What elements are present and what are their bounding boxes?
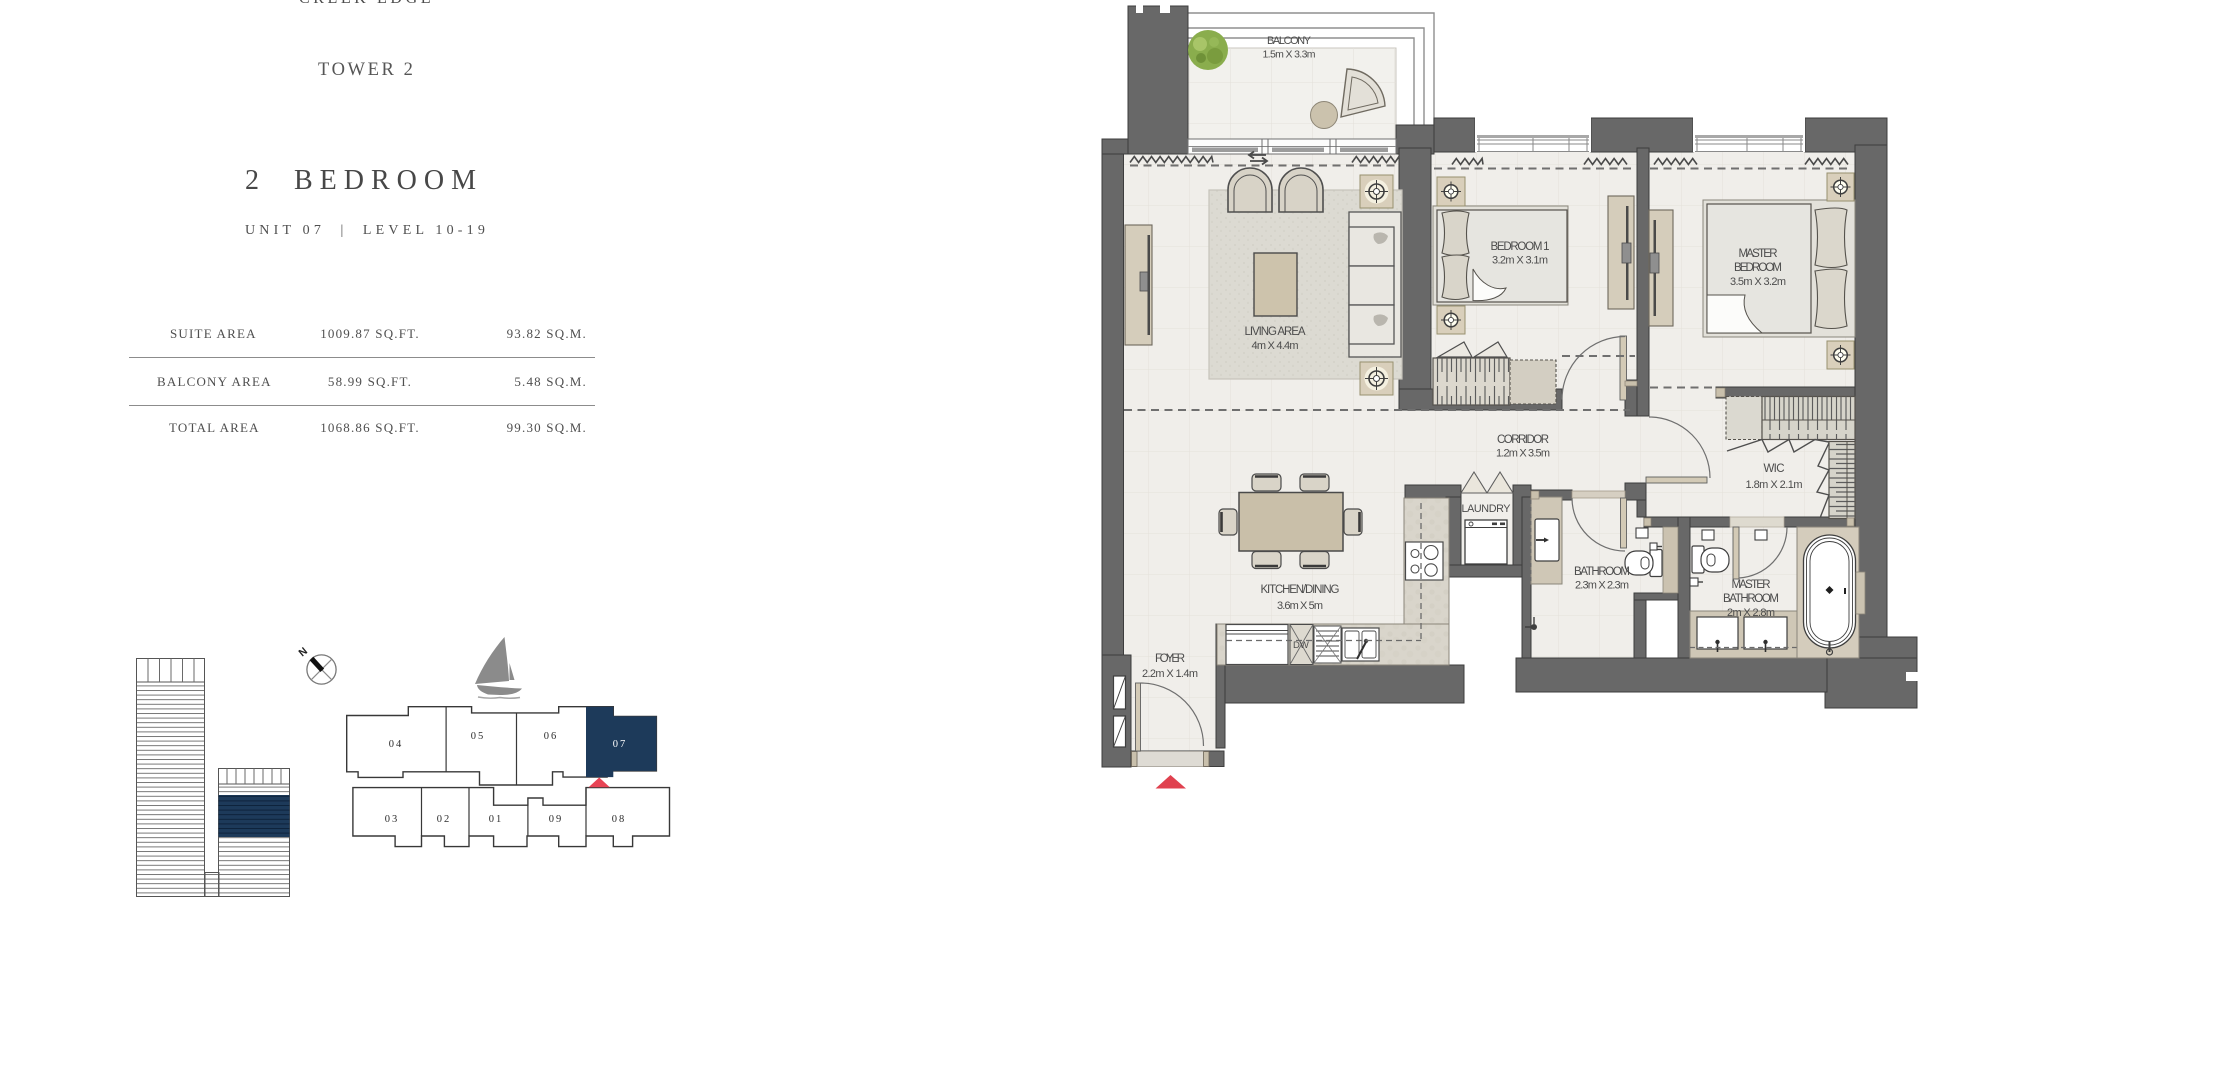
svg-text:08: 08 bbox=[612, 814, 627, 825]
svg-text:09: 09 bbox=[549, 814, 564, 825]
svg-text:2.3m X 2.3m: 2.3m X 2.3m bbox=[1575, 580, 1629, 592]
svg-text:BEDROOM 1: BEDROOM 1 bbox=[1491, 241, 1550, 253]
svg-text:MASTER: MASTER bbox=[1739, 248, 1778, 260]
svg-text:LIVING AREA: LIVING AREA bbox=[1245, 326, 1306, 338]
svg-text:1.2m X 3.5m: 1.2m X 3.5m bbox=[1496, 448, 1550, 460]
svg-text:3.6m X 5m: 3.6m X 5m bbox=[1277, 600, 1323, 612]
svg-text:FOYER: FOYER bbox=[1155, 653, 1185, 665]
svg-text:LAUNDRY: LAUNDRY bbox=[1462, 503, 1511, 515]
svg-text:3.5m X 3.2m: 3.5m X 3.2m bbox=[1730, 276, 1786, 288]
svg-text:CORRIDOR: CORRIDOR bbox=[1497, 434, 1549, 446]
svg-text:03: 03 bbox=[385, 814, 400, 825]
svg-text:BATHROOM: BATHROOM bbox=[1574, 566, 1630, 578]
svg-text:4m X 4.4m: 4m X 4.4m bbox=[1252, 340, 1299, 352]
svg-text:2m X 2.8m: 2m X 2.8m bbox=[1727, 607, 1775, 619]
svg-text:MASTER: MASTER bbox=[1732, 579, 1771, 591]
svg-text:BALCONY: BALCONY bbox=[1267, 35, 1311, 47]
svg-text:1.5m X 3.3m: 1.5m X 3.3m bbox=[1263, 49, 1316, 61]
svg-text:3.2m X 3.1m: 3.2m X 3.1m bbox=[1492, 255, 1548, 267]
svg-text:1.8m X 2.1m: 1.8m X 2.1m bbox=[1746, 479, 1803, 491]
svg-text:06: 06 bbox=[544, 731, 559, 742]
svg-text:07: 07 bbox=[613, 739, 628, 750]
svg-text:N: N bbox=[296, 645, 310, 659]
svg-text:01: 01 bbox=[489, 814, 504, 825]
svg-text:DW: DW bbox=[1293, 640, 1309, 651]
svg-text:BEDROOM: BEDROOM bbox=[1734, 262, 1782, 274]
svg-text:KITCHEN/DINING: KITCHEN/DINING bbox=[1261, 584, 1340, 596]
svg-text:2.2m X 1.4m: 2.2m X 1.4m bbox=[1142, 668, 1198, 680]
svg-text:BATHROOM: BATHROOM bbox=[1723, 593, 1779, 605]
svg-text:02: 02 bbox=[437, 814, 452, 825]
svg-text:WIC: WIC bbox=[1764, 463, 1785, 475]
svg-text:05: 05 bbox=[471, 731, 486, 742]
svg-text:04: 04 bbox=[389, 739, 404, 750]
